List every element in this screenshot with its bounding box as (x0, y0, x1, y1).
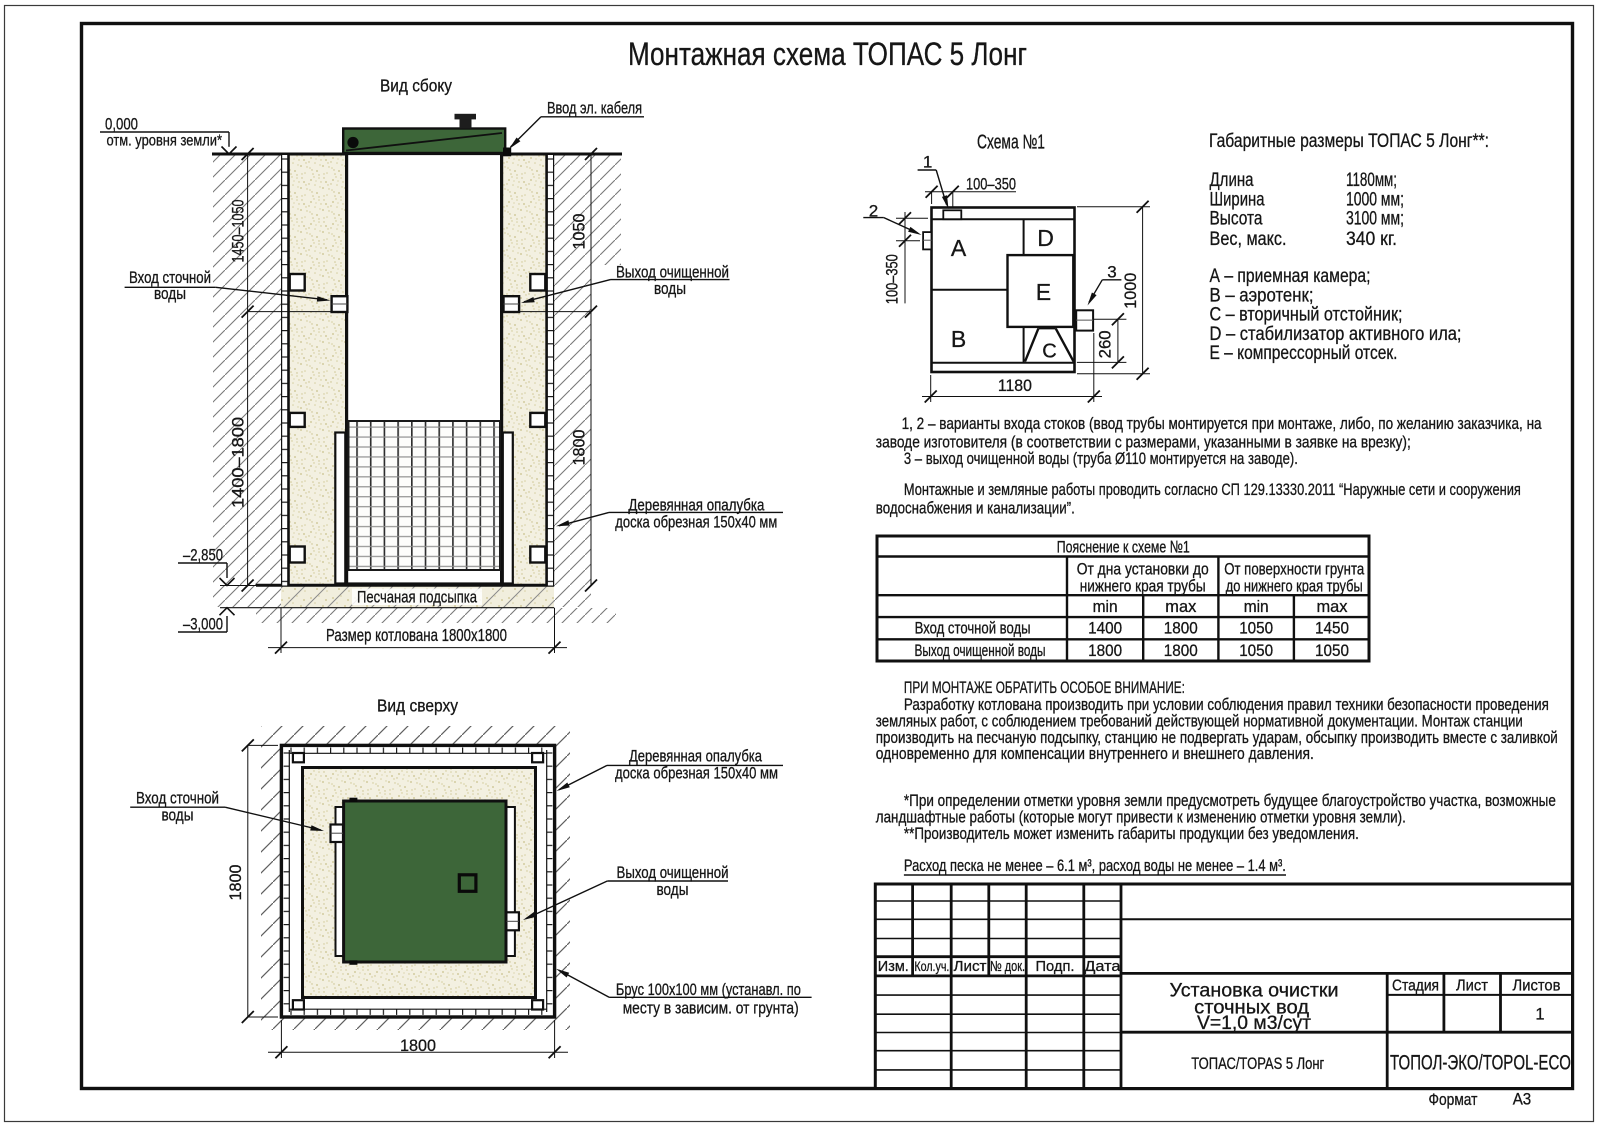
svg-text:0,000: 0,000 (105, 115, 138, 134)
svg-text:100–350: 100–350 (966, 175, 1016, 193)
svg-text:1050: 1050 (571, 214, 589, 250)
svg-text:1050: 1050 (1239, 642, 1273, 660)
svg-text:Пояснение к схеме №1: Пояснение к схеме №1 (1057, 538, 1190, 557)
svg-text:3100 мм;: 3100 мм; (1346, 208, 1404, 230)
svg-text:Песчаная подсыпка: Песчаная подсыпка (357, 588, 477, 607)
svg-text:Высота: Высота (1210, 208, 1263, 230)
svg-text:min: min (1244, 598, 1269, 616)
svg-text:Вес, макс.: Вес, макс. (1210, 228, 1287, 250)
svg-text:Монтажные и земляные работы пр: Монтажные и земляные работы проводить со… (904, 480, 1521, 499)
svg-text:одновременно для компенсации в: одновременно для компенсации внутреннего… (876, 744, 1314, 763)
svg-text:max: max (1165, 598, 1197, 616)
svg-text:1800: 1800 (1088, 642, 1122, 660)
svg-text:доска обрезная 150х40 мм: доска обрезная 150х40 мм (615, 765, 778, 783)
svg-text:C: C (1042, 341, 1056, 363)
svg-text:1050: 1050 (1315, 642, 1349, 660)
svg-text:3: 3 (1107, 263, 1116, 282)
svg-text:воды: воды (162, 807, 194, 825)
svg-text:Изм.: Изм. (878, 958, 909, 975)
svg-text:1: 1 (923, 153, 932, 172)
svg-text:Формат: Формат (1429, 1091, 1478, 1109)
svg-text:доска обрезная 150х40 мм: доска обрезная 150х40 мм (615, 514, 777, 532)
svg-text:Расход песка не менее – 6.1 м³: Расход песка не менее – 6.1 м³, расход в… (904, 856, 1286, 875)
svg-text:Габаритные размеры ТОПАС 5 Лон: Габаритные размеры ТОПАС 5 Лонг**: (1209, 130, 1489, 152)
svg-text:воды: воды (657, 881, 689, 899)
svg-text:1800: 1800 (1164, 620, 1198, 638)
svg-text:min: min (1093, 598, 1118, 616)
svg-text:260: 260 (1096, 330, 1114, 358)
svg-text:Подп.: Подп. (1036, 958, 1075, 975)
svg-text:Вид сверху: Вид сверху (377, 696, 458, 716)
svg-text:–2,850: –2,850 (183, 546, 223, 565)
svg-text:Вход сточной воды: Вход сточной воды (915, 620, 1031, 638)
svg-text:Лист: Лист (1456, 978, 1488, 995)
svg-text:max: max (1317, 598, 1349, 616)
svg-text:Вход сточной: Вход сточной (136, 790, 219, 808)
svg-text:1450–1050: 1450–1050 (230, 200, 248, 263)
svg-text:Е – компрессорный отсек.: Е – компрессорный отсек. (1210, 342, 1398, 364)
svg-text:Монтажная схема ТОПАС 5 Лонг: Монтажная схема ТОПАС 5 Лонг (628, 36, 1027, 72)
svg-text:Лист: Лист (954, 958, 987, 975)
svg-text:Схема №1: Схема №1 (977, 132, 1045, 154)
svg-text:нижнего края трубы: нижнего края трубы (1080, 578, 1206, 596)
svg-text:A: A (951, 235, 967, 261)
svg-text:E: E (1036, 279, 1051, 305)
svg-text:1800: 1800 (400, 1037, 436, 1055)
svg-text:**Производитель может изменить: **Производитель может изменить габариты … (904, 824, 1359, 843)
svg-text:От дна установки до: От дна установки до (1077, 561, 1209, 579)
svg-text:Брус 100х100 мм (устанавл. по: Брус 100х100 мм (устанавл. по (616, 981, 801, 999)
svg-text:1000: 1000 (1122, 273, 1140, 309)
svg-text:Кол.уч.: Кол.уч. (914, 958, 949, 974)
svg-text:Вид сбоку: Вид сбоку (380, 76, 452, 96)
svg-text:Ввод эл. кабеля: Ввод эл. кабеля (547, 100, 642, 118)
svg-text:340 кг.: 340 кг. (1346, 228, 1397, 250)
svg-text:Листов: Листов (1513, 978, 1561, 995)
svg-text:1, 2 – варианты входа стоков: 1, 2 – варианты входа стоков (ввод трубы… (902, 414, 1542, 433)
svg-text:–3,000: –3,000 (183, 615, 223, 634)
svg-text:Выход очищенной: Выход очищенной (617, 864, 729, 882)
svg-text:А3: А3 (1513, 1091, 1532, 1109)
svg-text:водоснабжения и канализации”.: водоснабжения и канализации”. (876, 498, 1075, 517)
svg-text:отм. уровня земли*: отм. уровня земли* (107, 133, 223, 150)
svg-text:3 – выход очищенной воды (труб: 3 – выход очищенной воды (труба Ø110 мон… (904, 449, 1298, 468)
svg-text:ТОПОЛ-ЭКО/TOPOL-ECO: ТОПОЛ-ЭКО/TOPOL-ECO (1390, 1052, 1571, 1075)
svg-text:воды: воды (654, 280, 686, 298)
svg-text:1800: 1800 (1164, 642, 1198, 660)
svg-text:Стадия: Стадия (1392, 978, 1439, 995)
svg-text:1400–1800: 1400–1800 (230, 417, 248, 508)
svg-text:1800: 1800 (571, 430, 589, 466)
svg-text:1400: 1400 (1088, 620, 1122, 638)
svg-text:1050: 1050 (1239, 620, 1273, 638)
svg-text:Деревянная опалубка: Деревянная опалубка (629, 748, 763, 766)
svg-text:месту в зависим. от грунта): месту в зависим. от грунта) (623, 1000, 799, 1018)
svg-text:100–350: 100–350 (883, 254, 901, 304)
svg-text:№ док.: № док. (990, 959, 1025, 975)
svg-text:B: B (951, 326, 966, 352)
svg-text:ТОПАС/TOPAS 5 Лонг: ТОПАС/TOPAS 5 Лонг (1191, 1054, 1324, 1073)
svg-text:Выход очищенной воды: Выход очищенной воды (915, 642, 1046, 660)
svg-text:От поверхности грунта: От поверхности грунта (1224, 561, 1365, 579)
svg-text:1: 1 (1535, 1006, 1544, 1024)
svg-text:V=1,0 м3/сут: V=1,0 м3/сут (1197, 1013, 1311, 1034)
svg-text:Дата: Дата (1084, 958, 1121, 975)
svg-text:Размер котлована 1800х1800: Размер котлована 1800х1800 (326, 625, 507, 645)
svg-text:1800: 1800 (227, 865, 245, 901)
svg-text:1180: 1180 (998, 377, 1032, 395)
svg-text:1450: 1450 (1315, 620, 1349, 638)
svg-text:D: D (1037, 225, 1054, 251)
svg-text:Выход очищенной: Выход очищенной (616, 264, 729, 282)
svg-text:до нижнего края трубы: до нижнего края трубы (1226, 578, 1363, 596)
